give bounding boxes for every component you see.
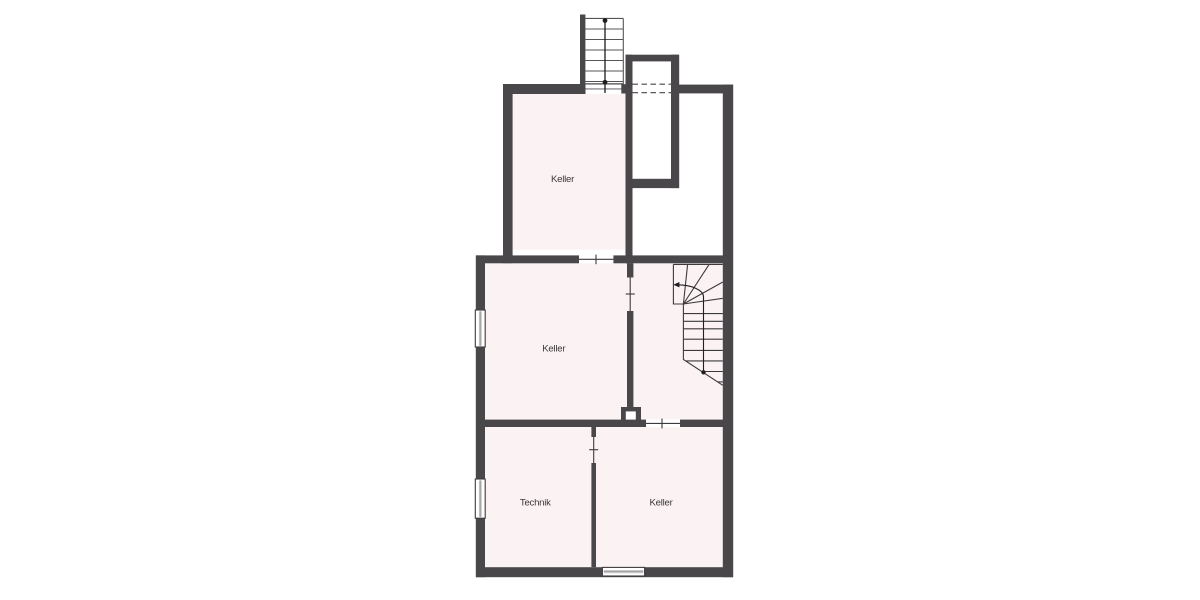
svg-text:Technik: Technik — [520, 498, 551, 509]
svg-text:Keller: Keller — [551, 174, 575, 185]
svg-text:Keller: Keller — [649, 498, 673, 509]
svg-text:Keller: Keller — [542, 344, 566, 355]
